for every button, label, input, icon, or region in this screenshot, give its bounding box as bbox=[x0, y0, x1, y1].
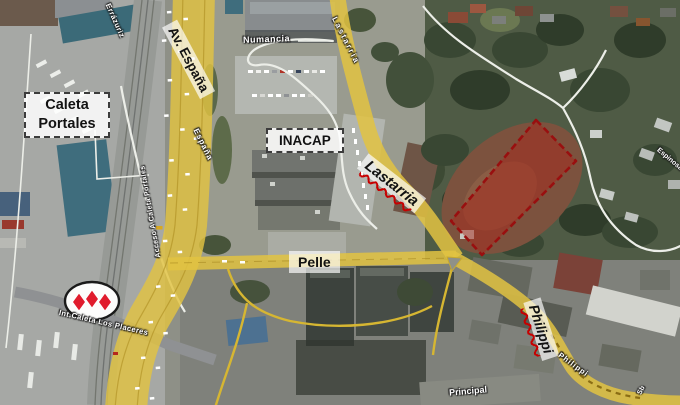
satellite-base bbox=[0, 0, 680, 405]
road-label-pelle: Pelle bbox=[289, 251, 340, 273]
caleta-portales-line2: Portales bbox=[26, 115, 108, 134]
caleta-portales-line1: Caleta bbox=[26, 96, 108, 115]
place-label-caleta-portales: Caleta Portales bbox=[24, 92, 110, 138]
street-label-numancia: Numancia bbox=[243, 33, 290, 45]
map-canvas[interactable]: Errázuriz Av. España Caleta Portales Num… bbox=[0, 0, 680, 405]
place-label-inacap: INACAP bbox=[266, 128, 344, 153]
